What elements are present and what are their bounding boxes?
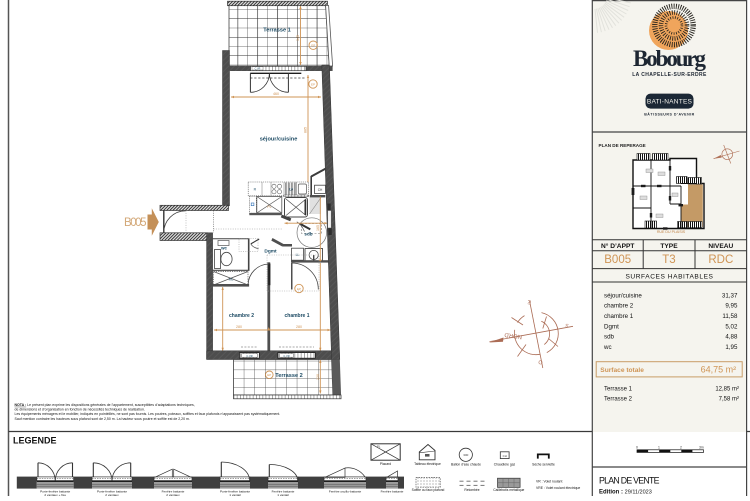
svg-text:2: 2 bbox=[680, 445, 682, 449]
svg-text:séjour/cuisine: séjour/cuisine bbox=[604, 292, 642, 299]
svg-text:Dgmt: Dgmt bbox=[604, 323, 619, 330]
svg-text:130: 130 bbox=[316, 374, 320, 380]
svg-text:3m: 3m bbox=[699, 445, 704, 449]
svg-text:EP: EP bbox=[311, 44, 315, 48]
svg-text:VR : Volet roulant: VR : Volet roulant bbox=[536, 480, 562, 484]
svg-text:Terrasse 1: Terrasse 1 bbox=[604, 387, 633, 393]
svg-text:RDC: RDC bbox=[708, 254, 733, 266]
svg-text:Les équipements ménagers et l: Les équipements ménagers et le mobilier,… bbox=[15, 412, 281, 416]
svg-text:Terrasse 2: Terrasse 2 bbox=[604, 396, 633, 402]
svg-text:Bobourg: Bobourg bbox=[633, 46, 707, 71]
svg-text:BÂTISSEURS D’AVENIR: BÂTISSEURS D’AVENIR bbox=[644, 111, 695, 116]
svg-text:Chaudière gaz: Chaudière gaz bbox=[494, 463, 516, 467]
svg-text:9,95: 9,95 bbox=[725, 303, 738, 310]
svg-text:C.VR: C.VR bbox=[255, 68, 261, 71]
svg-text:Placard: Placard bbox=[380, 462, 391, 466]
svg-text:wc: wc bbox=[603, 344, 612, 351]
svg-text:5,02: 5,02 bbox=[725, 323, 738, 330]
svg-text:EP: EP bbox=[297, 287, 301, 291]
svg-text:PLAN DE REPERAGE: PLAN DE REPERAGE bbox=[599, 143, 646, 148]
svg-text:280: 280 bbox=[236, 325, 242, 329]
svg-text:B005: B005 bbox=[604, 254, 631, 266]
svg-text:Sèche serviette: Sèche serviette bbox=[532, 463, 555, 467]
svg-text:C.VR: C.VR bbox=[283, 354, 289, 358]
svg-text:11,58: 11,58 bbox=[722, 313, 738, 320]
svg-text:Retombée: Retombée bbox=[464, 488, 479, 492]
svg-text:chambre 1: chambre 1 bbox=[604, 313, 634, 320]
svg-text:ML: ML bbox=[229, 277, 234, 281]
svg-text:1,95: 1,95 bbox=[725, 344, 738, 351]
svg-text:345: 345 bbox=[296, 35, 300, 41]
svg-text:280: 280 bbox=[296, 325, 302, 329]
svg-text:chambre 2: chambre 2 bbox=[604, 303, 634, 310]
svg-text:chambre 1: chambre 1 bbox=[284, 313, 309, 319]
svg-text:Dgmt: Dgmt bbox=[264, 248, 277, 254]
svg-text:Surface totale: Surface totale bbox=[600, 367, 644, 374]
svg-text:sdb: sdb bbox=[304, 232, 312, 237]
svg-text:B005: B005 bbox=[124, 217, 147, 229]
svg-text:Caillebotis métallique: Caillebotis métallique bbox=[493, 488, 524, 492]
svg-text:CH: CH bbox=[318, 188, 323, 192]
svg-text:4,88: 4,88 bbox=[725, 334, 738, 341]
svg-text:NOTA : Le présent plan exprime: NOTA : Le présent plan exprime les dispo… bbox=[15, 403, 195, 407]
svg-text:LA CHAPELLE-SUR-ERDRE: LA CHAPELLE-SUR-ERDRE bbox=[632, 72, 707, 78]
svg-text:300: 300 bbox=[463, 453, 468, 457]
svg-text:31,37: 31,37 bbox=[722, 292, 738, 299]
svg-text:0: 0 bbox=[636, 445, 638, 449]
svg-text:sdb: sdb bbox=[604, 334, 615, 341]
svg-text:TYPE: TYPE bbox=[660, 243, 678, 250]
svg-text:séjour/cuisine: séjour/cuisine bbox=[260, 137, 298, 143]
svg-text:Edition : 29/11/2023: Edition : 29/11/2023 bbox=[599, 489, 652, 495]
svg-text:NIVEAU: NIVEAU bbox=[708, 243, 733, 250]
svg-text:chambre 2: chambre 2 bbox=[229, 313, 254, 319]
svg-text:VRE : Volet roulant électrique: VRE : Volet roulant électrique bbox=[536, 486, 580, 490]
svg-text:EP: EP bbox=[311, 82, 315, 86]
svg-text:PL: PL bbox=[377, 445, 381, 449]
svg-text:12,85 m²: 12,85 m² bbox=[715, 387, 739, 393]
svg-text:C.VR: C.VR bbox=[246, 354, 252, 358]
svg-text:1: 1 bbox=[658, 445, 660, 449]
svg-text:885: 885 bbox=[304, 127, 308, 133]
svg-text:PL: PL bbox=[267, 205, 271, 209]
svg-text:wc: wc bbox=[220, 245, 227, 250]
svg-text:de dimensions et d’organisatio: de dimensions et d’organisation en fonct… bbox=[15, 407, 145, 411]
svg-text:PLAN DE VENTE: PLAN DE VENTE bbox=[599, 476, 660, 486]
svg-text:7,58 m²: 7,58 m² bbox=[719, 396, 739, 402]
svg-text:LEGENDE: LEGENDE bbox=[13, 436, 57, 446]
svg-text:Sauf mention contraire les hau: Sauf mention contraire les hauteurs sous… bbox=[15, 417, 190, 421]
svg-text:N° D’APPT: N° D’APPT bbox=[601, 242, 634, 250]
svg-text:Fenêtre oscillo-battante: Fenêtre oscillo-battante bbox=[329, 489, 362, 493]
svg-text:T3: T3 bbox=[662, 254, 675, 266]
svg-text:Ballon d’eau chaude: Ballon d’eau chaude bbox=[451, 463, 481, 467]
svg-text:RUE DU PLAISIS: RUE DU PLAISIS bbox=[657, 230, 686, 234]
svg-text:165: 165 bbox=[316, 225, 320, 231]
svg-text:SURFACES HABITABLES: SURFACES HABITABLES bbox=[625, 274, 713, 281]
svg-text:460: 460 bbox=[273, 92, 279, 96]
svg-text:Terrasse 2: Terrasse 2 bbox=[275, 373, 303, 379]
svg-text:Tableau électrique: Tableau électrique bbox=[414, 462, 441, 466]
svg-text:Soffite ou faux plafond: Soffite ou faux plafond bbox=[412, 488, 445, 492]
svg-text:CH: CH bbox=[503, 454, 507, 458]
svg-text:Fenêtre battante: Fenêtre battante bbox=[381, 489, 404, 493]
svg-text:Terrasse 1: Terrasse 1 bbox=[263, 28, 291, 34]
svg-text:EP: EP bbox=[267, 373, 271, 377]
svg-text:64,75 m²: 64,75 m² bbox=[701, 365, 737, 375]
svg-text:BATI-NANTES: BATI-NANTES bbox=[647, 98, 693, 105]
